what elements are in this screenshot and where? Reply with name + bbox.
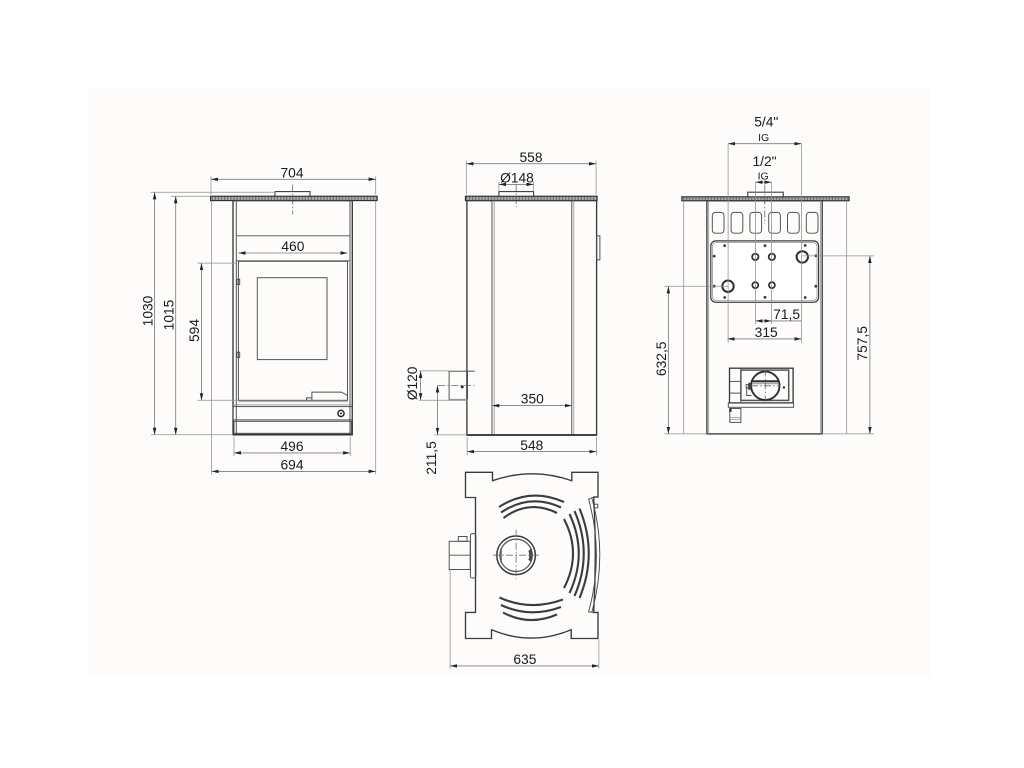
svg-text:704: 704 xyxy=(280,165,303,180)
svg-text:71,5: 71,5 xyxy=(773,307,800,322)
svg-text:350: 350 xyxy=(521,392,544,407)
svg-text:635: 635 xyxy=(513,652,536,667)
svg-text:632,5: 632,5 xyxy=(654,341,669,376)
svg-text:5/4": 5/4" xyxy=(754,114,778,129)
svg-text:757,5: 757,5 xyxy=(855,326,870,361)
svg-text:694: 694 xyxy=(280,457,303,472)
svg-text:315: 315 xyxy=(755,325,778,340)
svg-text:1030: 1030 xyxy=(140,295,155,326)
svg-text:Ø148: Ø148 xyxy=(500,170,534,185)
svg-text:548: 548 xyxy=(520,438,543,453)
svg-text:594: 594 xyxy=(187,319,202,342)
svg-text:IG: IG xyxy=(758,171,769,183)
svg-text:211,5: 211,5 xyxy=(424,441,439,475)
svg-text:496: 496 xyxy=(280,439,303,454)
svg-text:Ø120: Ø120 xyxy=(405,366,420,400)
svg-text:558: 558 xyxy=(519,150,542,165)
svg-text:1/2": 1/2" xyxy=(752,154,776,169)
svg-text:1015: 1015 xyxy=(162,299,177,330)
svg-text:IG: IG xyxy=(758,132,769,144)
svg-text:460: 460 xyxy=(281,239,304,254)
